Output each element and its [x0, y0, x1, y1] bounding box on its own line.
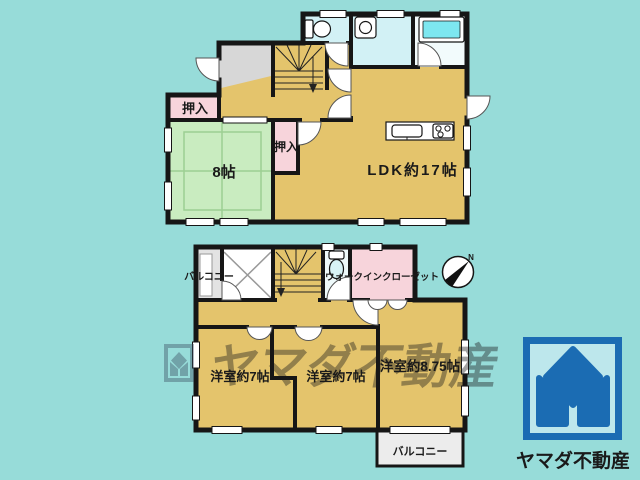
company-logo: ヤマダ不動産 [516, 341, 630, 473]
tatami-label: 8帖 [212, 163, 235, 181]
watermark-text: ヤマダ不動産 [206, 340, 503, 394]
bathtub-icon [423, 21, 460, 38]
kitchen-sink-icon [392, 125, 422, 137]
toilet-bowl-icon [314, 21, 331, 37]
toilet-tank-icon [305, 20, 313, 38]
floorplan-page: 押入 押入 8帖 LDK約17帖 [0, 0, 640, 480]
logo-company-name: ヤマダ不動産 [516, 449, 630, 472]
washbasin-bowl-icon [360, 22, 372, 34]
walk-in-closet-label: ウォークインクローゼット [325, 271, 439, 283]
closet-upper-label: 押入 [182, 101, 208, 116]
sliding-door-tatami [223, 117, 267, 123]
balcony-top-label: バルコニー [184, 271, 234, 283]
compass-north-label: N [468, 253, 474, 262]
ldk-label: LDK約17帖 [367, 161, 459, 179]
balcony-bottom-label: バルコニー [393, 445, 448, 458]
closet-lower-label: 押入 [274, 139, 298, 154]
watermark: ヤマダ不動産 [166, 340, 503, 394]
toilet-tank-icon-2f [329, 251, 344, 259]
balcony-access-window [390, 427, 450, 434]
floorplan-canvas: 押入 押入 8帖 LDK約17帖 [0, 0, 640, 480]
